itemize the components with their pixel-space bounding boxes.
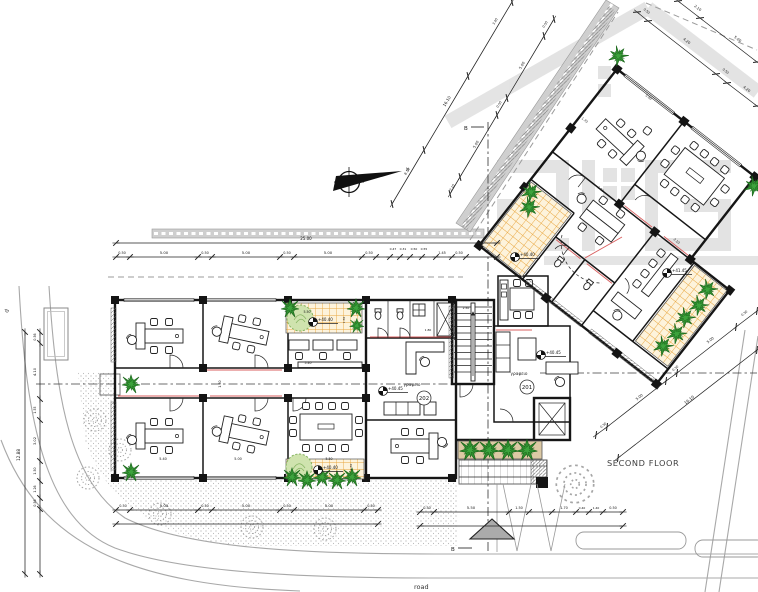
level-value: +40.40 <box>520 252 535 257</box>
dimension-label: 1.50 <box>218 380 222 387</box>
meeting-room <box>290 403 363 452</box>
room-201 <box>494 326 578 422</box>
dimension-label: 0.50 <box>201 251 209 255</box>
dimension-label: 2.10 <box>449 183 456 191</box>
workstation <box>126 319 183 354</box>
dimension-label: 1.45 <box>438 251 446 255</box>
dimension-label: 1.80 <box>425 328 432 332</box>
dimension-label: 0.50 <box>609 506 617 510</box>
planter-plant <box>122 375 140 393</box>
dimension-label: 0.50 <box>367 504 375 508</box>
dimension-label: 0.47 <box>390 247 397 251</box>
dimension-label: 5.00 <box>160 503 169 508</box>
dimension-label: 0.50 <box>671 364 679 372</box>
section-marker-top: B <box>464 126 468 132</box>
dimension-label: 1.70 <box>581 116 589 124</box>
dimension-label: 0.50 <box>740 309 748 317</box>
dimension-label: 5.00 <box>733 35 742 44</box>
dimension-label: 0.50 <box>119 504 127 508</box>
dimension-label: 5.00 <box>160 250 169 255</box>
north-arrow: N <box>333 167 409 197</box>
dimension-label: 0.50 <box>283 504 291 508</box>
dimension-label: 5.00 <box>706 336 715 345</box>
dimension-label: 5.00 <box>635 393 644 402</box>
office-202 <box>384 342 448 464</box>
room-number: 201 <box>522 385 532 391</box>
planter <box>458 440 542 461</box>
dimension-label: 1.55 <box>33 406 37 413</box>
floor-plan-canvas: N <box>0 0 758 592</box>
dimension-label: 0.50 <box>455 251 463 255</box>
open-office-row <box>289 340 362 368</box>
dimension-label: 0.50 <box>201 504 209 508</box>
dimension-label: 1.50 <box>349 464 353 471</box>
dimension-label: 0.40 <box>579 506 586 510</box>
dimension-label: 3.40 <box>492 17 499 25</box>
dimension-label: 5.00 <box>325 503 334 508</box>
dimension-label: 0.50 <box>365 251 373 255</box>
dimension-label: 2.50 <box>463 306 470 310</box>
level-value: +40.45 <box>388 386 403 391</box>
road-label: road <box>414 583 429 591</box>
level-value: +40.45 <box>546 350 561 355</box>
dimension-label: 1.70 <box>560 506 568 510</box>
dimension-label: 0.50 <box>118 251 126 255</box>
break-room <box>498 276 548 326</box>
entrance-arrow <box>470 519 514 539</box>
dimension-label: 5.40 <box>159 457 167 461</box>
dimension-label: 1.26 <box>33 485 37 492</box>
dimension-label: 0.56 <box>33 333 37 340</box>
north-arrow-blade <box>333 171 402 191</box>
room-name: γραφειο <box>404 382 421 387</box>
dimension-label: 0.56 <box>33 499 37 506</box>
dimension-label: 5.40 <box>304 361 311 365</box>
dimension-label: 1.50 <box>515 506 523 510</box>
dimension-label: 0.50 <box>411 247 418 251</box>
section-marker-bottom: B <box>451 547 455 553</box>
dimension-label: 5.00 <box>472 139 480 149</box>
level-value: +40.40 <box>323 465 338 470</box>
dimension-label: 0.50 <box>283 251 291 255</box>
pergola <box>459 460 548 488</box>
dimension-label: 5.00 <box>518 60 526 70</box>
room-name: γραφειο <box>511 371 528 376</box>
north-road <box>152 229 484 238</box>
floor-plan-page: N <box>0 0 758 592</box>
dimension-label: 4.10 <box>33 367 37 376</box>
dimension-label: 1.50 <box>342 317 346 324</box>
dimension-label: 5.00 <box>234 457 242 461</box>
stairs <box>454 303 492 381</box>
dimension-label: 2.10 <box>693 4 702 13</box>
dimension-label: 5.00 <box>324 250 333 255</box>
room-tag-202: γραφειο 202 <box>404 382 431 405</box>
dimension-label: 5.00 <box>242 503 251 508</box>
left-road-label: d <box>4 309 11 314</box>
dimension-label: 0.55 <box>421 247 428 251</box>
dimension-label: 5.50 <box>303 310 310 314</box>
dimension-label: 5.00 <box>242 250 251 255</box>
elevator <box>534 398 570 440</box>
dimension-label: 5.50 <box>467 505 476 510</box>
balcony-top <box>281 299 365 333</box>
level-value: +41.45 <box>672 268 687 273</box>
dimension-label: 25.00 <box>300 236 312 241</box>
dimension-label: 12.88 <box>16 449 21 461</box>
dimension-label: 1.40 <box>593 506 600 510</box>
room-tag-201: γραφειο 201 <box>511 371 534 394</box>
dimension-label: 1.50 <box>33 467 37 474</box>
dimension-label: 3.02 <box>33 437 37 445</box>
dimension-label: 0.31 <box>400 247 407 251</box>
sofa <box>496 332 510 372</box>
dimension-label: 0.50 <box>423 506 431 510</box>
hatched-wall <box>111 308 116 362</box>
room-number: 202 <box>419 396 429 402</box>
canopy-struts <box>497 484 565 552</box>
columns <box>111 296 456 482</box>
wc-block <box>375 303 454 336</box>
site-wall <box>576 532 686 549</box>
sofa <box>384 402 420 415</box>
level-value: +40.40 <box>318 317 333 322</box>
dimension-label: 0.50 <box>542 20 549 28</box>
floor-title: SECOND FLOOR <box>607 458 679 468</box>
dimension-label: 5.50 <box>325 457 332 461</box>
